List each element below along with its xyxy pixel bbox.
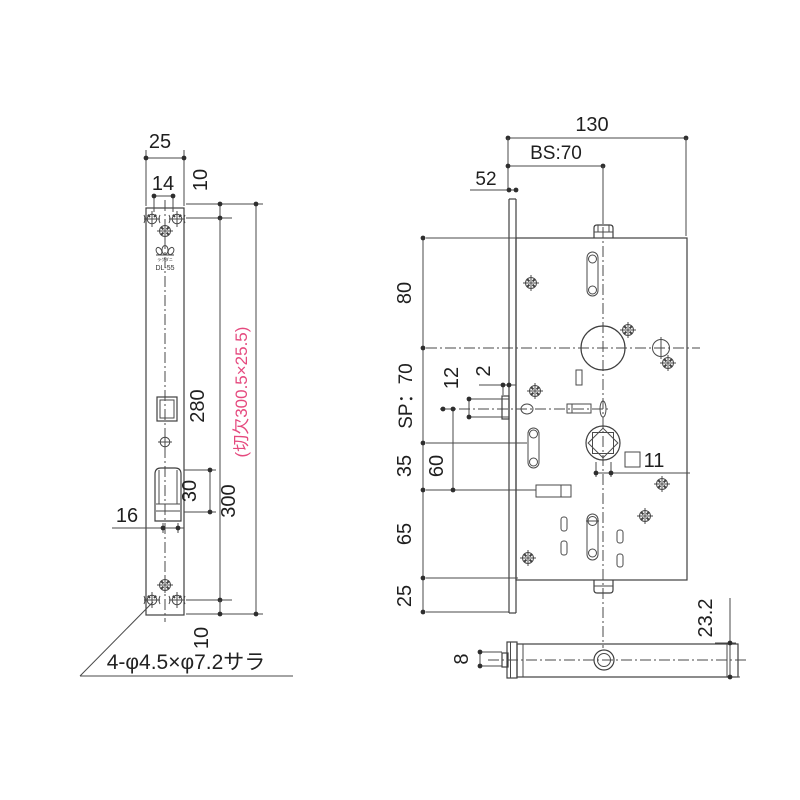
dim-screw-span-label: 14 <box>152 173 174 195</box>
phillips-screw-icon <box>523 275 539 291</box>
dim-hole-span-280: 280 <box>187 218 222 602</box>
countersunk-hole-icon <box>169 211 185 227</box>
phillips-screw-icon <box>157 223 173 239</box>
center-hole <box>158 435 172 449</box>
vent-slot <box>617 530 623 543</box>
vent-slot <box>561 517 567 531</box>
dim-width-label: 25 <box>149 131 171 153</box>
adjust-slot-top <box>587 252 598 296</box>
phillips-screw-icon <box>620 322 636 338</box>
model-label: DL-55 <box>155 265 174 272</box>
phillips-screw-icon <box>637 508 653 524</box>
screw-spec-label: 4-φ4.5×φ7.2サラ <box>107 651 266 674</box>
dim-screw-span-14: 14 <box>152 173 176 212</box>
dim-square-11: 11 <box>594 450 690 477</box>
phillips-screw-icon <box>527 383 543 399</box>
square-symbol <box>625 452 640 467</box>
dim-case-depth-label: 23.2 <box>695 599 717 638</box>
dim-top-offset-label: 10 <box>190 169 212 191</box>
dim-length-label: 300 <box>218 484 240 517</box>
brand-text: ラクダニ <box>157 256 173 262</box>
dim-case-depth-23-2: 23.2 <box>695 598 740 679</box>
dim-latch-height-label: 30 <box>179 480 201 502</box>
screw-spec-note: 4-φ4.5×φ7.2サラ <box>80 602 293 676</box>
dim-top-offset-10: 10 <box>190 169 222 221</box>
dim-bottom-offset-10: 10 <box>191 600 222 649</box>
dim-protrusion-label: 2 <box>473 365 495 376</box>
adjust-slot-bottom <box>586 514 599 560</box>
vent-slot <box>561 541 567 555</box>
dim-offset-12-label: 12 <box>441 367 463 389</box>
small-slot <box>576 370 582 385</box>
cutout-note: (切欠300.5×25.5) <box>232 327 251 458</box>
latch-bolt-opening <box>155 468 181 521</box>
dim-latch-width-label: 16 <box>116 505 138 527</box>
bottom-view: 8 23.2 <box>451 598 748 679</box>
dim-span-60: 60 <box>426 407 455 493</box>
dim-case-width-label: 130 <box>575 114 608 136</box>
dim-front-edge-52: 52 <box>470 169 518 192</box>
dim-top-span-label: 80 <box>394 282 416 304</box>
drawing-canvas: ラクダニ DL-55 25 <box>0 0 800 800</box>
deadbolt-lever <box>536 485 571 497</box>
dim-bottom-span-label: 25 <box>394 585 416 607</box>
vent-slot <box>617 554 623 567</box>
adjust-slot-middle <box>528 428 539 468</box>
front-view: ラクダニ DL-55 25 <box>80 131 293 676</box>
dim-span-35-label: 35 <box>394 455 416 477</box>
phillips-screw-icon <box>520 550 536 566</box>
phillips-screw-icon <box>654 476 670 492</box>
lock-technical-drawing: ラクダニ DL-55 25 <box>0 0 800 800</box>
faceplate-edge <box>509 199 516 613</box>
dim-latch-thickness-8: 8 <box>451 650 502 669</box>
side-view: 11 130 <box>394 114 700 648</box>
dim-case-width-130: 130 <box>506 114 689 236</box>
phillips-screw-icon <box>660 355 676 371</box>
dim-latch-width-16: 16 <box>112 505 184 533</box>
dim-latch-thickness-label: 8 <box>451 653 473 664</box>
deadbolt-square-hole <box>157 397 177 421</box>
dim-square-label: 11 <box>644 450 665 472</box>
dim-span-60-label: 60 <box>426 455 448 477</box>
dim-spindle-pitch-label: SP：70 <box>396 363 417 428</box>
dim-hole-span-label: 280 <box>187 389 209 422</box>
dim-front-edge-label: 52 <box>475 169 496 190</box>
phillips-screw-icon <box>157 577 173 593</box>
dim-backset-label: BS:70 <box>530 143 582 164</box>
countersunk-hole-icon <box>169 592 185 608</box>
dim-backset: BS:70 <box>506 143 606 224</box>
dim-bottom-offset-label: 10 <box>191 627 213 649</box>
dim-span-65-label: 65 <box>394 523 416 545</box>
